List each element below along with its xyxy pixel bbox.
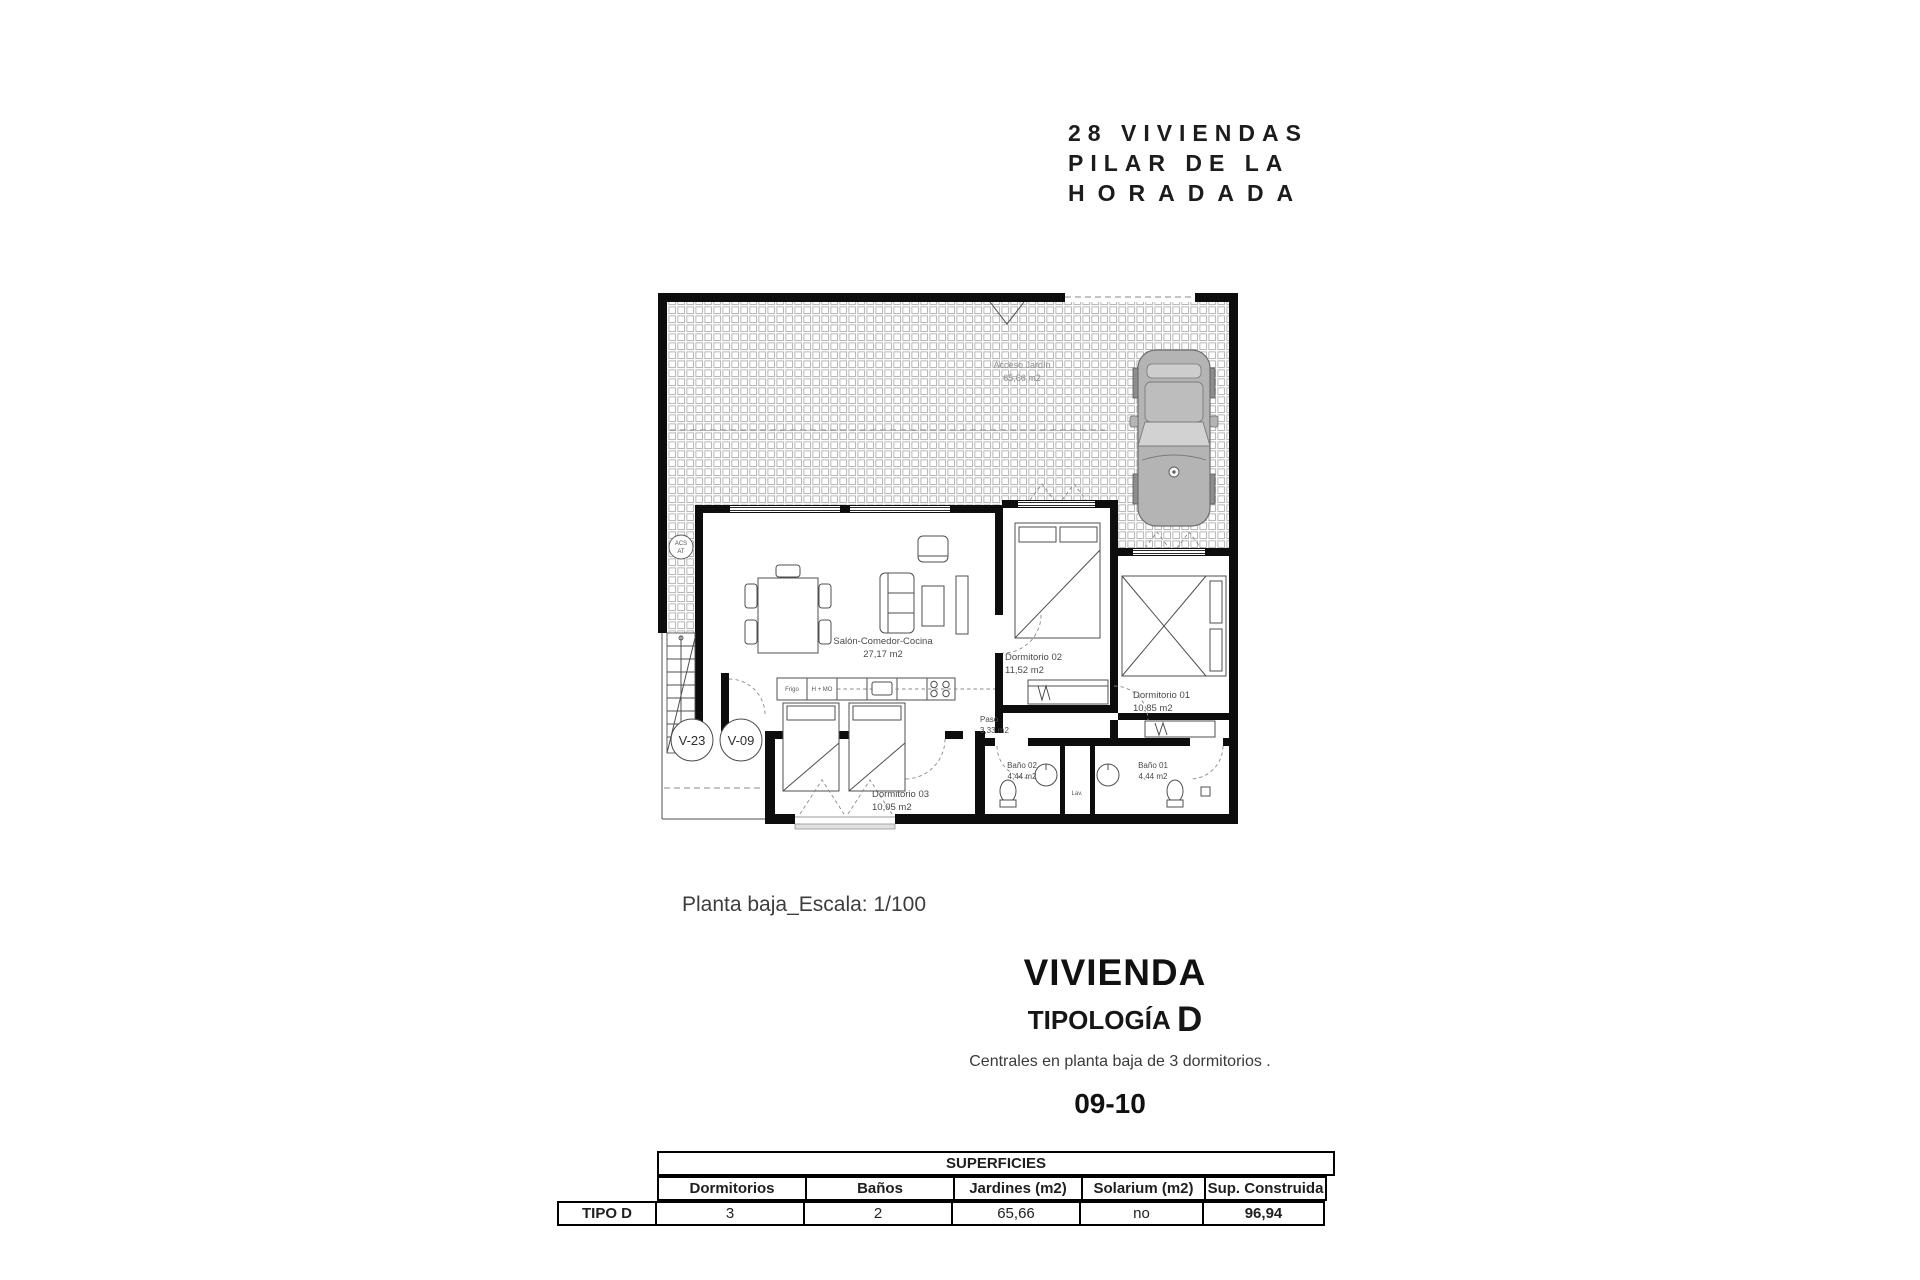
table-spacer xyxy=(557,1153,657,1178)
bed-dorm1 xyxy=(1122,576,1226,676)
row-label-tipo-d: TIPO D xyxy=(557,1201,657,1226)
col-sup-construida: Sup. Construida xyxy=(1204,1176,1327,1201)
beds-dorm3 xyxy=(783,703,905,791)
acs-line1: ACS xyxy=(675,541,687,547)
living-area: 27,17 m2 xyxy=(863,649,903,660)
bath2-label: Baño 02 xyxy=(1007,761,1037,770)
tv-unit xyxy=(956,576,968,634)
unit-numbers: 09-10 xyxy=(950,1088,1270,1120)
bed-dorm2 xyxy=(1015,523,1100,638)
door-sill xyxy=(795,817,895,829)
garden-label: Acceso Jardín xyxy=(993,360,1050,370)
closet-dorm2 xyxy=(1028,680,1108,704)
bath2-area: 4,44 m2 xyxy=(1008,772,1037,781)
coffee-table xyxy=(922,586,944,626)
sofa xyxy=(880,573,914,633)
project-title: 28 VIVIENDAS PILAR DE LA HORADADA xyxy=(1068,118,1328,208)
garden-area: 65,66 m2 xyxy=(1003,373,1041,383)
document-page: 28 VIVIENDAS PILAR DE LA HORADADA Acceso… xyxy=(0,0,1920,1280)
unit-tag-v23: V-23 xyxy=(671,719,713,761)
kitchen-counter: Frigo H + MO xyxy=(777,678,995,700)
table-row-tipo-d: TIPO D 3 2 65,66 no 96,94 xyxy=(557,1203,1335,1226)
unit-tag-v09: V-09 xyxy=(720,719,762,761)
paso-area: 3,33 m2 xyxy=(980,726,1009,735)
tipologia-text: TIPOLOGÍA xyxy=(1028,1005,1170,1035)
bath1-label: Baño 01 xyxy=(1138,761,1168,770)
car-top-view xyxy=(1130,350,1218,526)
dorm1-area: 10,85 m2 xyxy=(1133,703,1173,714)
dorm2-area: 11,52 m2 xyxy=(1005,665,1044,676)
project-title-line2: PILAR DE LA xyxy=(1068,148,1328,178)
value-dormitorios: 3 xyxy=(655,1201,805,1226)
fridge-label: Frigo xyxy=(785,687,799,693)
paso-label: Paso xyxy=(980,715,999,724)
section-description: Centrales en planta baja de 3 dormitorio… xyxy=(960,1053,1280,1071)
v23-label: V-23 xyxy=(679,733,706,748)
col-jardines: Jardines (m2) xyxy=(953,1176,1083,1201)
acs-marker: ACS AT xyxy=(669,535,693,559)
surfaces-table: SUPERFICIES Dormitorios Baños Jardines (… xyxy=(557,1153,1335,1226)
dorm1-label: Dormitorio 01 xyxy=(1133,690,1190,701)
type-letter: D xyxy=(1177,1000,1202,1039)
value-jardines: 65,66 xyxy=(951,1201,1081,1226)
superficies-header: SUPERFICIES xyxy=(657,1151,1335,1176)
bath1-fixtures xyxy=(1097,764,1210,807)
dorm3-label: Dormitorio 03 xyxy=(872,789,929,800)
value-solarium: no xyxy=(1079,1201,1204,1226)
project-title-line3: HORADADA xyxy=(1068,178,1328,208)
armchair xyxy=(918,536,948,562)
col-solarium: Solarium (m2) xyxy=(1081,1176,1206,1201)
col-dormitorios: Dormitorios xyxy=(657,1176,807,1201)
col-banos: Baños xyxy=(805,1176,955,1201)
section-heading: VIVIENDA TIPOLOGÍA D xyxy=(950,952,1280,1040)
section-title: VIVIENDA xyxy=(950,952,1280,994)
kitchen-sink xyxy=(872,682,892,695)
dining-table xyxy=(745,565,831,653)
living-label: Salón-Comedor-Cocina xyxy=(833,636,933,647)
floor-plan: Acceso Jardín 65,66 m2 xyxy=(650,288,1250,833)
oven-label: H + MO xyxy=(812,687,833,693)
floor-plan-svg: Acceso Jardín 65,66 m2 xyxy=(650,288,1250,833)
value-banos: 2 xyxy=(803,1201,953,1226)
section-subtitle: TIPOLOGÍA D xyxy=(950,1000,1280,1040)
plan-caption: Planta baja_Escala: 1/100 xyxy=(682,893,926,917)
dorm2-label: Dormitorio 02 xyxy=(1005,652,1062,663)
value-sup-construida: 96,94 xyxy=(1202,1201,1325,1226)
laundry-label: Lav. xyxy=(1072,791,1083,797)
bath1-area: 4,44 m2 xyxy=(1139,772,1168,781)
table-row-superficies: SUPERFICIES xyxy=(557,1153,1335,1178)
project-title-line1: 28 VIVIENDAS xyxy=(1068,118,1328,148)
v09-label: V-09 xyxy=(728,733,755,748)
acs-line2: AT xyxy=(677,549,685,555)
table-row-headers: Dormitorios Baños Jardines (m2) Solarium… xyxy=(557,1178,1335,1203)
closet-dorm1 xyxy=(1145,721,1215,737)
dorm3-area: 10,05 m2 xyxy=(872,802,912,813)
table-spacer xyxy=(557,1178,657,1203)
